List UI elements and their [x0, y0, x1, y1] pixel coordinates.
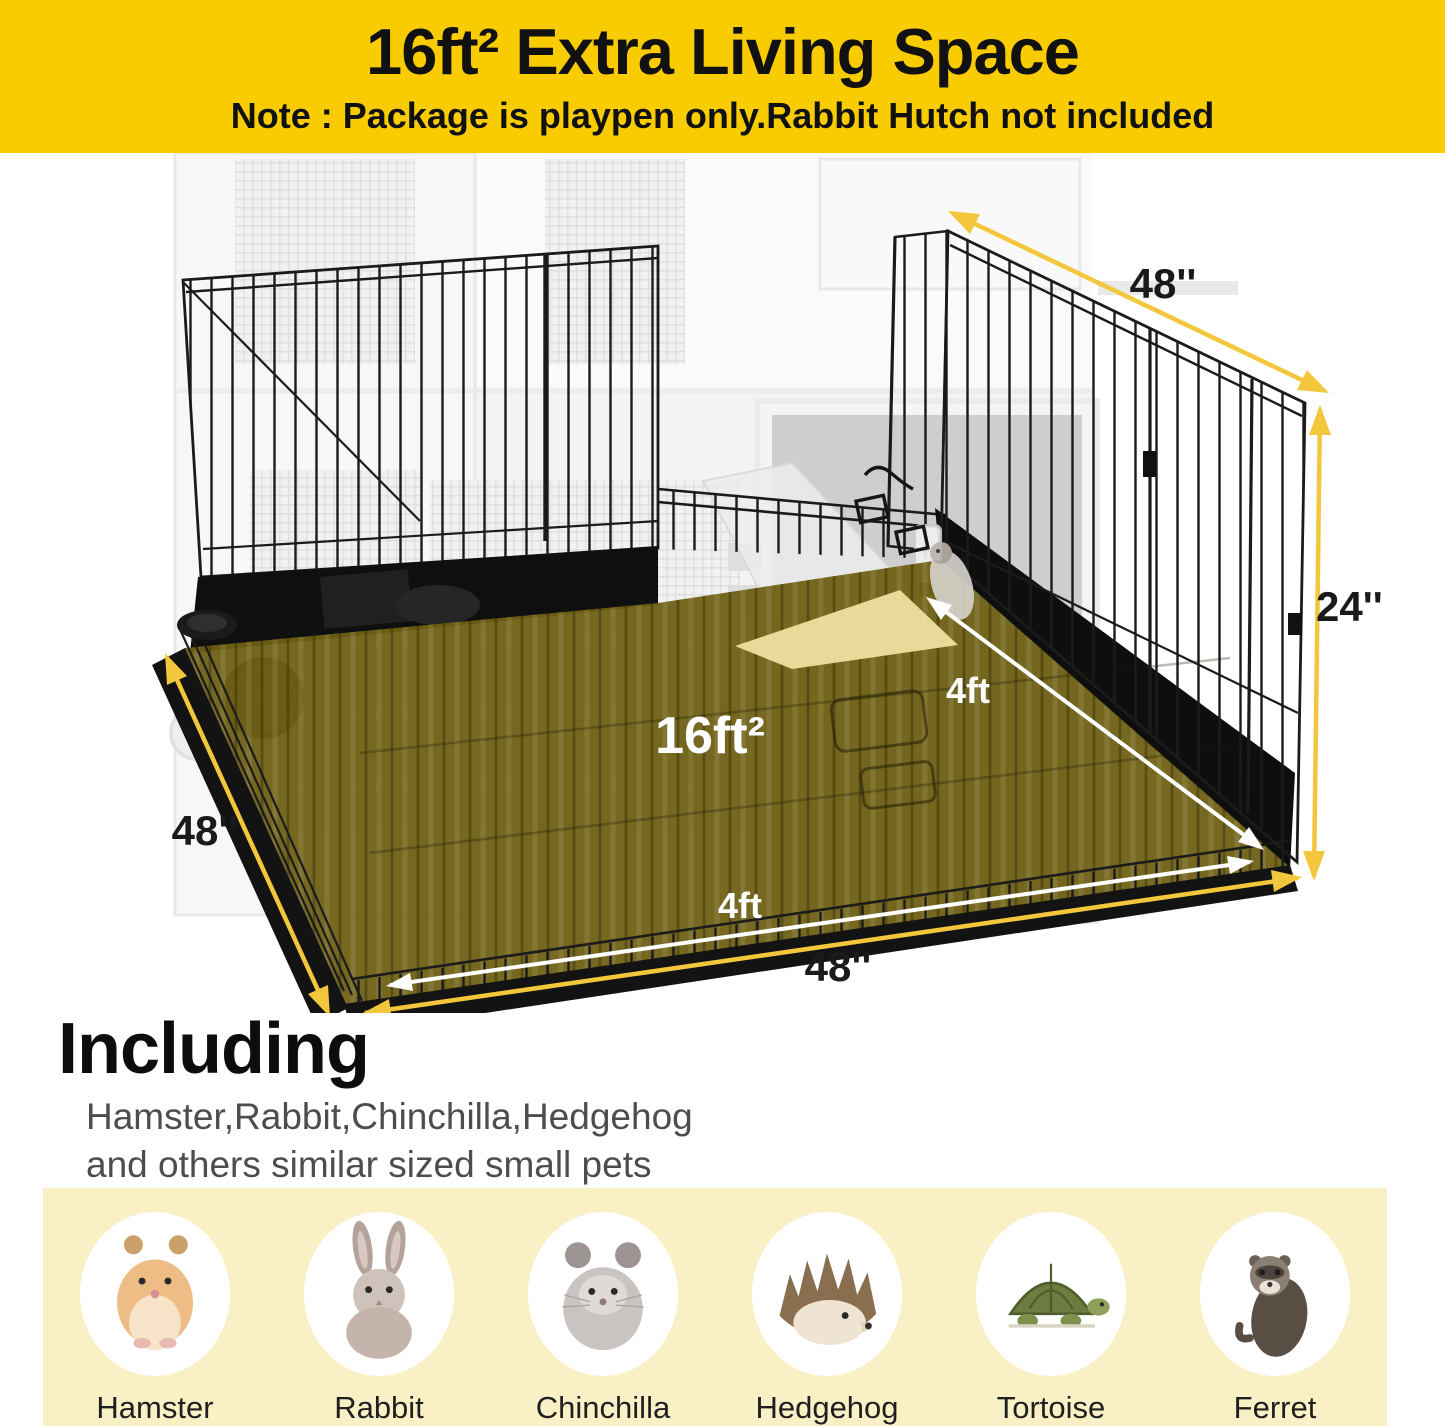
including-line2: and others similar sized small pets [86, 1144, 1445, 1186]
top-width-label: 48'' [1130, 260, 1197, 307]
rabbit-photo [304, 1212, 454, 1376]
pet-types-band: Hamster Rabbit [43, 1188, 1387, 1426]
header-banner: 16ft² Extra Living Space Note : Package … [0, 0, 1445, 153]
including-heading: Including [58, 1008, 1445, 1090]
playpen-diagram-svg: 4ft 4ft 16ft² 48'' 24'' 48'' [0, 153, 1445, 1013]
floor-depth-label: 4ft [718, 885, 762, 926]
floor-area-label: 16ft² [655, 707, 765, 765]
floor-width-label: 4ft [946, 670, 990, 711]
hamster-illustration [80, 1212, 230, 1376]
pet-label: Chinchilla [536, 1390, 670, 1426]
left-depth-label: 48'' [172, 807, 239, 854]
playpen-diagram: 4ft 4ft 16ft² 48'' 24'' 48'' [0, 153, 1445, 1013]
pet-card-rabbit: Rabbit [267, 1188, 491, 1426]
pet-label: Hedgehog [755, 1390, 898, 1426]
tortoise-photo [976, 1212, 1126, 1376]
chinchilla-illustration [528, 1212, 678, 1376]
ferret-illustration [1200, 1212, 1350, 1376]
wire-clip [1143, 451, 1156, 477]
playpen-back-left-wall [183, 246, 658, 577]
product-infographic: 16ft² Extra Living Space Note : Package … [0, 0, 1445, 1426]
header-note: Note : Package is playpen only.Rabbit Hu… [0, 95, 1445, 137]
chinchilla-photo [528, 1212, 678, 1376]
pet-card-chinchilla: Chinchilla [491, 1188, 715, 1426]
pet-label: Rabbit [334, 1390, 424, 1426]
pet-card-hedgehog: Hedgehog [715, 1188, 939, 1426]
including-line1: Hamster,Rabbit,Chinchilla,Hedgehog [86, 1096, 1445, 1138]
hedgehog-photo [752, 1212, 902, 1376]
playpen-back-right-panel [888, 231, 948, 552]
tortoise-illustration [976, 1212, 1126, 1376]
ferret-photo [1200, 1212, 1350, 1376]
pet-label: Ferret [1234, 1390, 1317, 1426]
bottom-width-label: 48'' [805, 943, 872, 990]
height-label: 24'' [1316, 583, 1383, 630]
rabbit-illustration [304, 1212, 454, 1376]
height-arrow [1314, 409, 1320, 877]
pet-label: Tortoise [997, 1390, 1106, 1426]
page: { "header": { "title": "16ft² Extra Livi… [0, 0, 1445, 1426]
wire-clip [1288, 613, 1302, 635]
page-title: 16ft² Extra Living Space [0, 0, 1445, 89]
pet-label: Hamster [96, 1390, 213, 1426]
including-section: Including Hamster,Rabbit,Chinchilla,Hedg… [0, 1008, 1445, 1186]
pet-card-tortoise: Tortoise [939, 1188, 1163, 1426]
pet-card-hamster: Hamster [43, 1188, 267, 1426]
hedgehog-illustration [752, 1212, 902, 1376]
hamster-photo [80, 1212, 230, 1376]
pet-card-ferret: Ferret [1163, 1188, 1387, 1426]
